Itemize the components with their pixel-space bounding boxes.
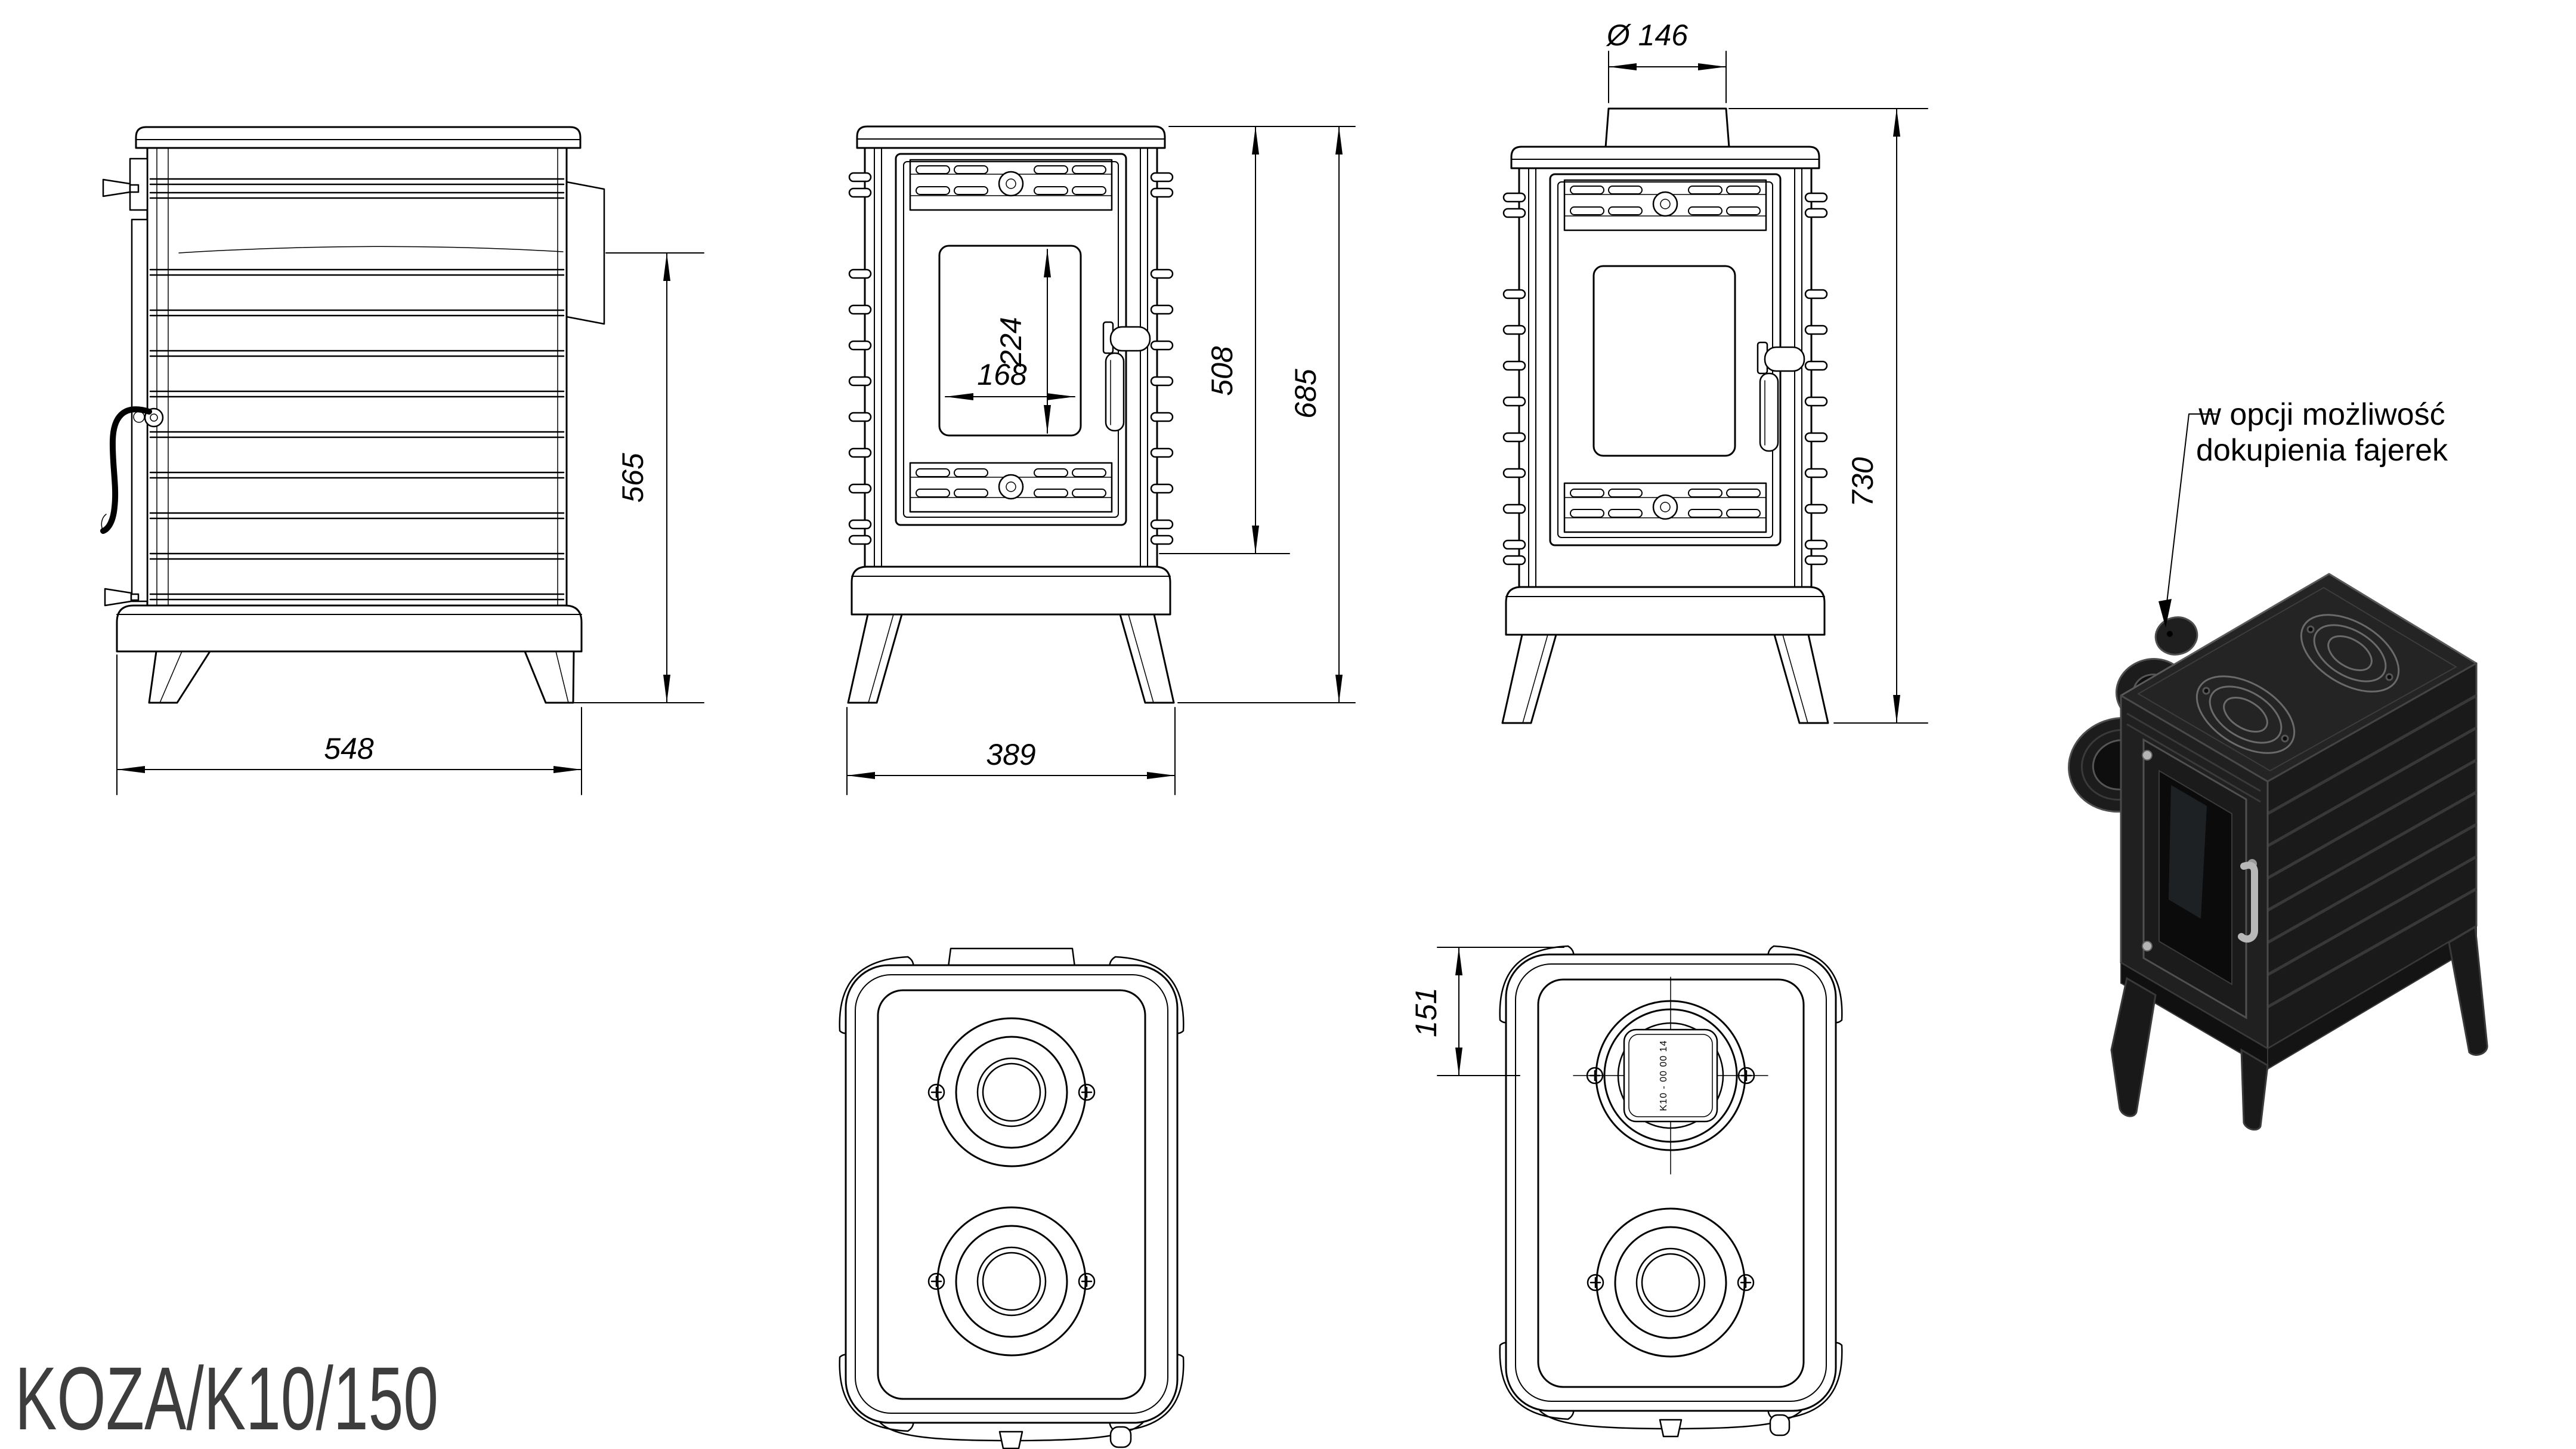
hinge-pin-icon — [2142, 750, 2152, 760]
hinge-pin-icon — [1111, 1427, 1131, 1447]
dimension-flue-diameter: Ø 146 — [1606, 18, 1726, 103]
legs — [149, 651, 574, 703]
drawing-sheet: 548 565 168 224 389 508 — [0, 0, 2576, 1449]
front-view-with-flue: Ø 146 730 — [1502, 18, 1928, 723]
front-body — [1502, 147, 1828, 723]
front-view: 168 224 389 508 685 — [847, 126, 1355, 795]
stove-render-body — [2111, 574, 2487, 1130]
dim-548-label: 548 — [324, 732, 374, 765]
dim-565-label: 565 — [616, 453, 650, 503]
top-view-with-flue: K10 - 00 00 14 151 — [1409, 946, 1842, 1436]
dim-151-label: 151 — [1409, 987, 1443, 1037]
base-plinth — [117, 605, 582, 651]
latch-knob-icon — [1660, 1420, 1681, 1436]
dimension-total-height: 685 — [1178, 126, 1355, 703]
dimension-body-height: 508 — [1159, 126, 1355, 554]
side-view: 548 565 — [101, 127, 704, 795]
damper-knob-icon — [103, 159, 147, 210]
drawing-canvas: 548 565 168 224 389 508 — [0, 0, 2576, 1449]
rear-heat-shield — [567, 182, 604, 324]
annotation-line1: w opcji możliwość — [2198, 397, 2445, 432]
top-plate-outline — [846, 965, 1177, 1423]
top-plate — [136, 127, 580, 148]
flue-collar-stamp: K10 - 00 00 14 — [1659, 1040, 1669, 1111]
hinge-pin-icon — [1770, 1415, 1789, 1435]
flue-pipe — [1606, 109, 1729, 147]
dim-508-label: 508 — [1205, 346, 1239, 396]
dim-146-label: Ø 146 — [1606, 18, 1688, 52]
drawing-title: KOZA/K10/150 — [15, 1348, 438, 1448]
dim-224-label: 224 — [994, 317, 1028, 367]
dim-389-label: 389 — [986, 738, 1035, 771]
screw-icon — [1587, 1068, 1603, 1083]
stove-body — [147, 148, 567, 605]
top-view — [840, 949, 1184, 1448]
front-body — [848, 126, 1174, 703]
hinge-pin-icon — [2142, 941, 2152, 951]
annotation-line2: dokupienia fajerek — [2196, 433, 2448, 468]
dimension-width: 389 — [847, 707, 1175, 795]
screw-icon — [1739, 1068, 1754, 1083]
latch-knob-icon — [1000, 1432, 1022, 1448]
stove-3d-render: w opcji możliwość dokupienia fajerek — [2059, 397, 2487, 1130]
dim-730-label: 730 — [1846, 457, 1879, 507]
dim-685-label: 685 — [1289, 369, 1322, 419]
